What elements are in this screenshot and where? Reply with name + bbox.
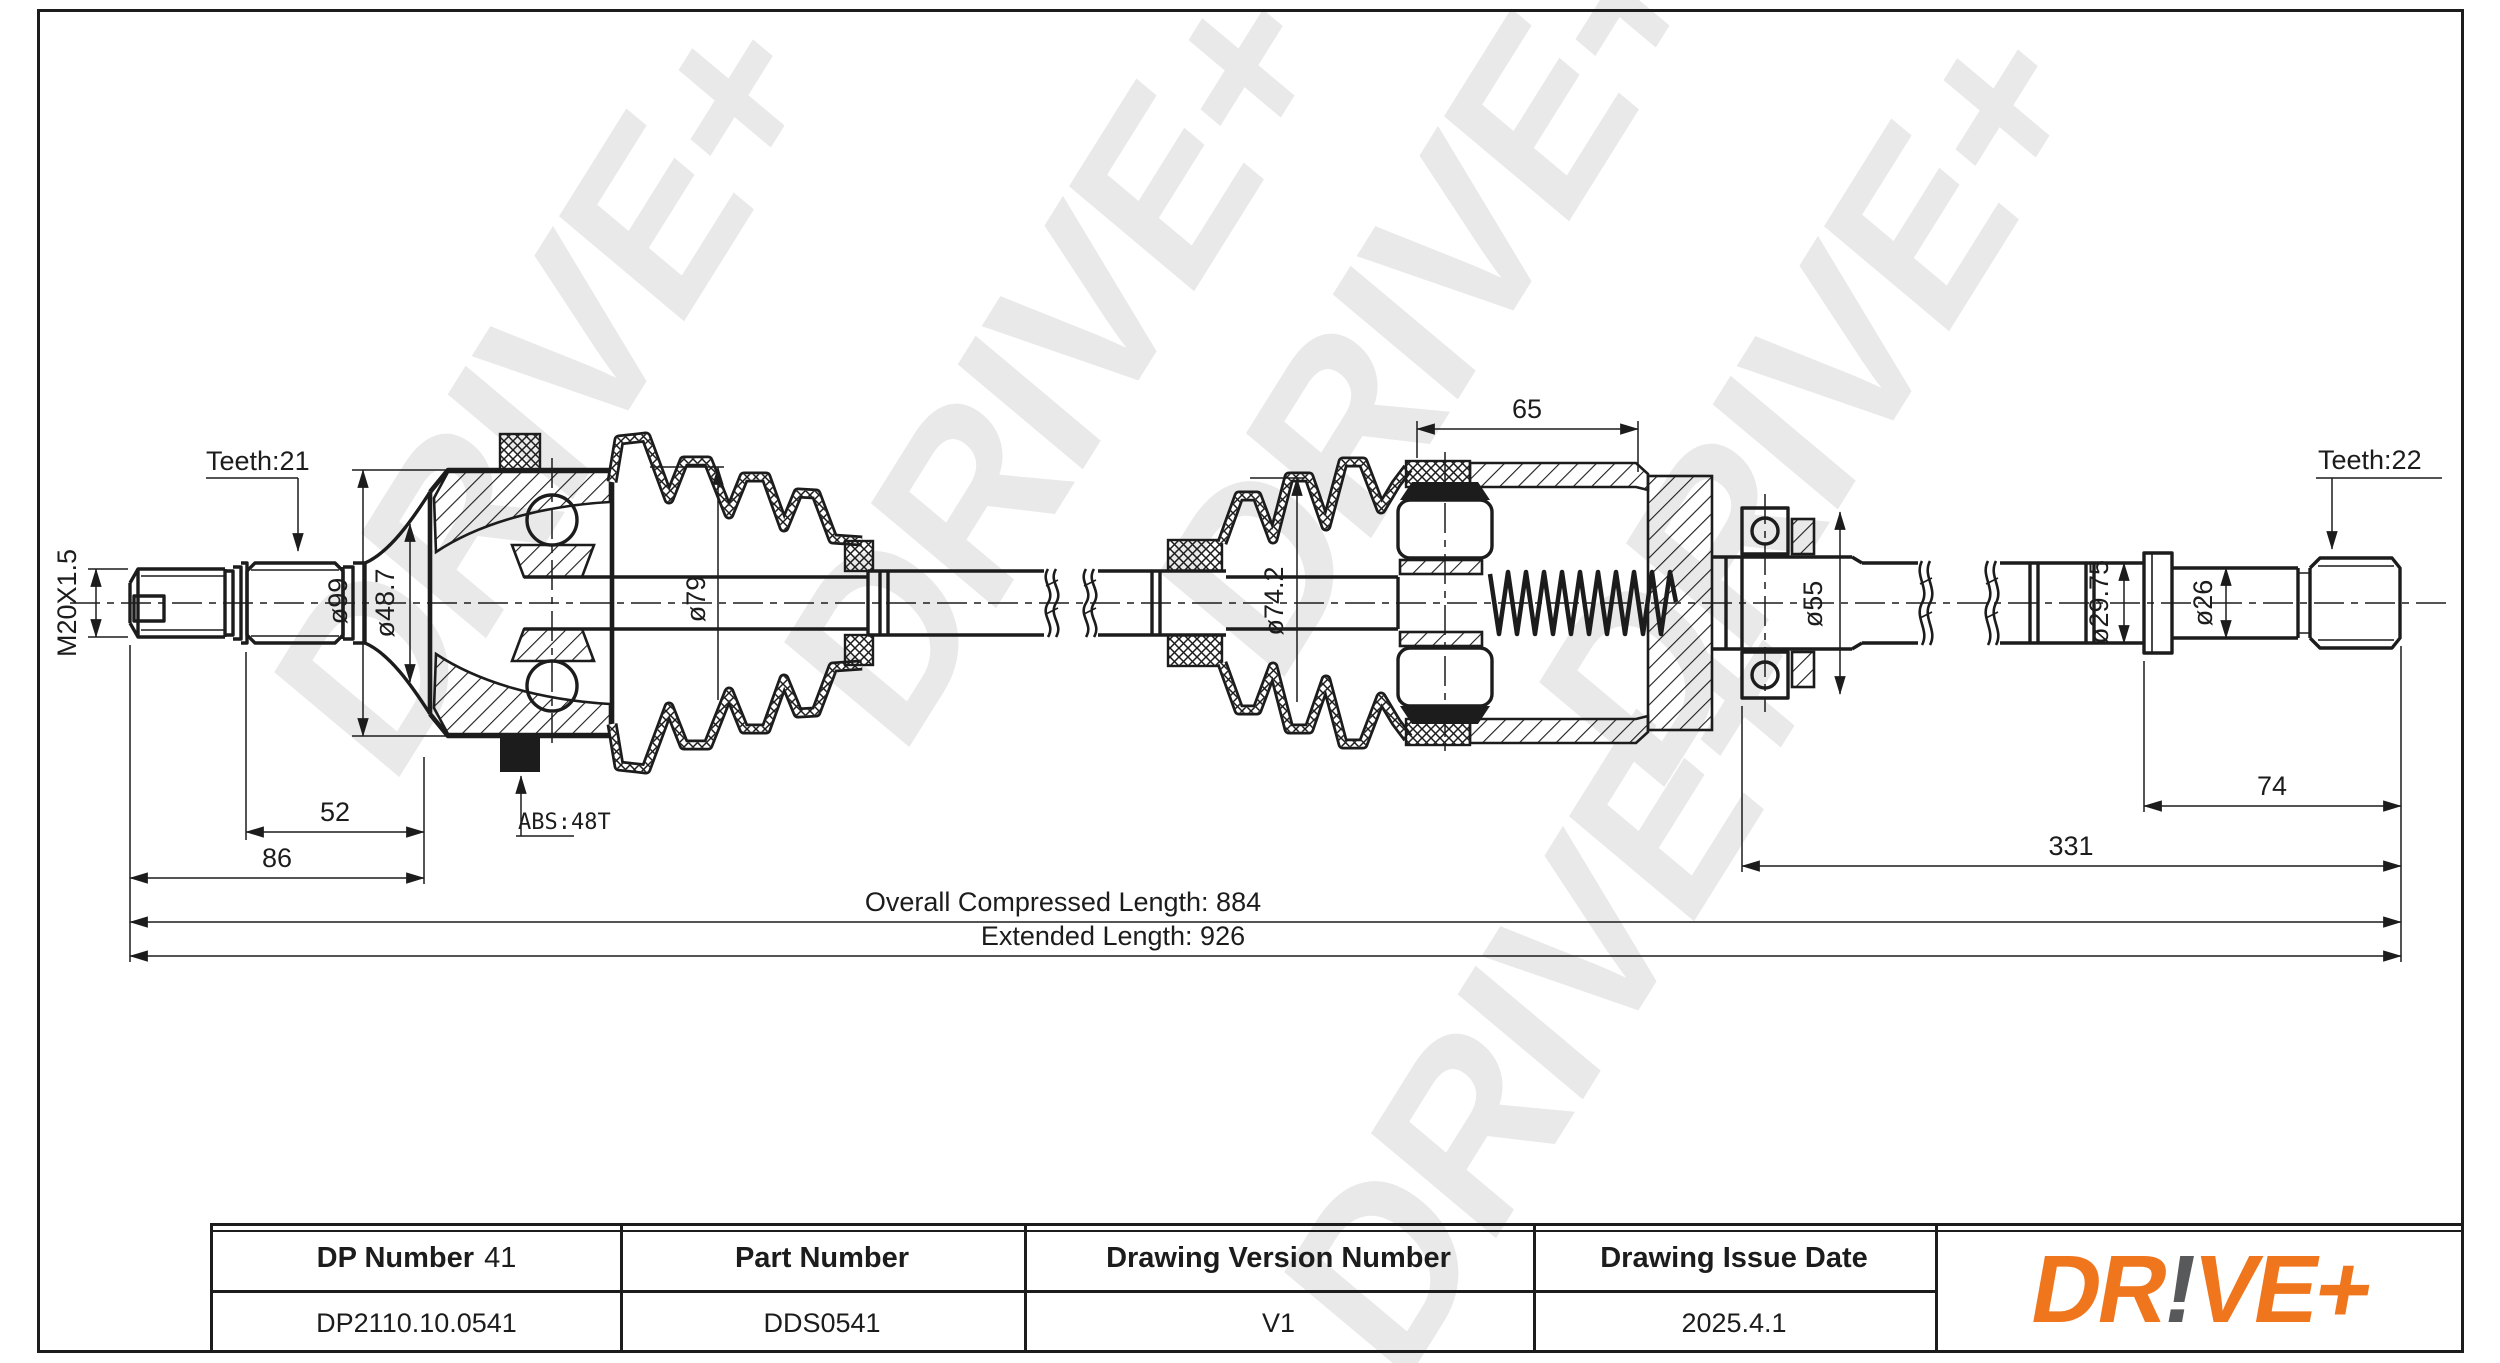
- logo-dr: DR: [2023, 1235, 2175, 1345]
- dp-number-value: DP2110.10.0541: [213, 1293, 620, 1353]
- dim-compressed-length: Overall Compressed Length: 884: [865, 887, 1261, 917]
- label-dia-housing: ø99: [323, 578, 353, 625]
- part-number-header: Part Number: [620, 1226, 1024, 1290]
- dp-number-suffix: 41: [484, 1242, 516, 1275]
- label-abs-ring: ABS:48T: [518, 810, 611, 835]
- dim-331: 331: [2048, 831, 2093, 861]
- dp-number-label: DP Number: [317, 1242, 474, 1275]
- label-teeth-right: Teeth:22: [2318, 445, 2422, 475]
- dim-74: 74: [2257, 771, 2287, 801]
- dp-number-header: DP Number 41: [213, 1226, 620, 1290]
- drawing-sheet: DRIVE+ DRIVE+ DRIVE+ DRIVE+ DRIVE+: [0, 0, 2500, 1363]
- logo-ve-plus: VE+: [2185, 1235, 2380, 1345]
- label-dia-inner-race: ø48.7: [370, 568, 400, 637]
- label-dia-shaft-right: ø29.75: [2084, 560, 2114, 644]
- drawing-issue-date-value: 2025.4.1: [1533, 1293, 1935, 1353]
- drawing-issue-date-header: Drawing Issue Date: [1533, 1226, 1935, 1290]
- label-thread: M20X1.5: [52, 549, 82, 657]
- part-number-value: DDS0541: [620, 1293, 1024, 1353]
- label-dia-bearing: ø55: [1798, 581, 1828, 628]
- label-dia-boot-left: ø79: [681, 576, 711, 623]
- dimensions: M20X1.5 Teeth:21 ø99 ø48.7 ø79 ABS:48T 5…: [52, 394, 2442, 962]
- drawing-version-header: Drawing Version Number: [1024, 1226, 1533, 1290]
- label-dia-spline-seat: ø26: [2188, 580, 2218, 627]
- dim-52: 52: [320, 797, 350, 827]
- label-teeth-left: Teeth:21: [206, 446, 310, 476]
- dim-65: 65: [1512, 394, 1542, 424]
- dim-extended-length: Extended Length: 926: [981, 921, 1245, 951]
- drive-plus-logo: DR!VE+: [1924, 1226, 2478, 1353]
- label-dia-boot-right: ø74.2: [1259, 566, 1289, 635]
- interconnect-shaft: [868, 569, 1226, 637]
- drawing-version-value: V1: [1024, 1293, 1533, 1353]
- title-block: DP Number 41 Part Number Drawing Version…: [210, 1223, 2464, 1353]
- driveshaft-technical-drawing: M20X1.5 Teeth:21 ø99 ø48.7 ø79 ABS:48T 5…: [0, 0, 2500, 1363]
- dim-86: 86: [262, 843, 292, 873]
